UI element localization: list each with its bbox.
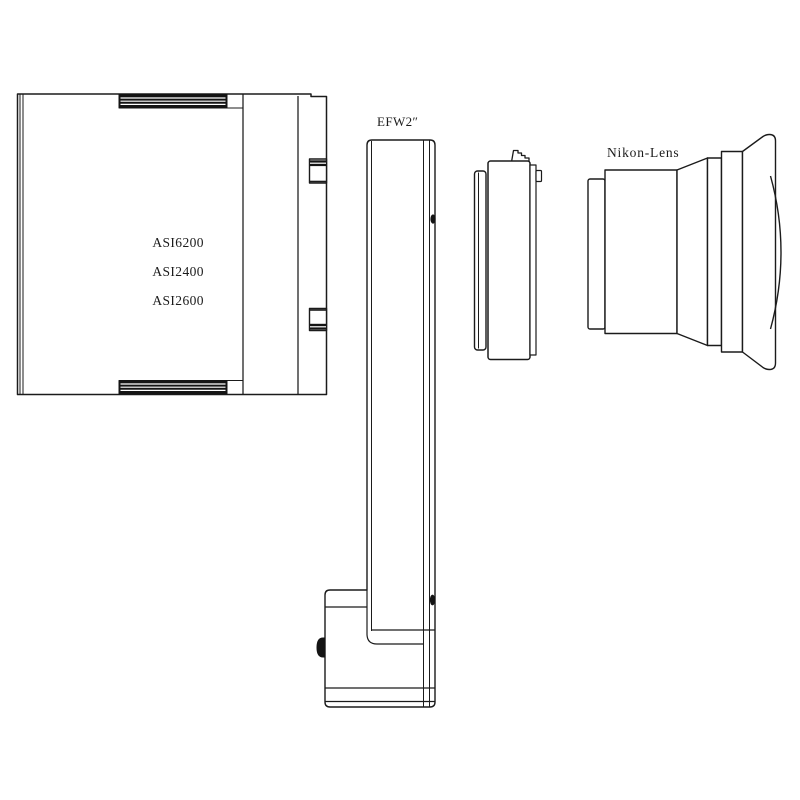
- camera-heatsink-top: [119, 95, 243, 109]
- camera-model-1: ASI6200: [152, 235, 204, 250]
- adapter-body: [488, 161, 530, 360]
- nikon-adapter: [475, 151, 542, 360]
- adapter-index-tab: [536, 171, 542, 182]
- lens-ring-a: [708, 158, 722, 346]
- lens-ring-b: [722, 152, 743, 353]
- camera-model-2: ASI2400: [152, 264, 204, 279]
- usb-port-upper: [310, 159, 327, 183]
- filter-wheel-body: [325, 140, 435, 707]
- adapter-rear-ring: [530, 165, 536, 355]
- lens-cone: [677, 158, 708, 346]
- lens-label: Nikon-Lens: [607, 145, 680, 161]
- motor-connector-bump: [317, 638, 326, 658]
- camera-model-labels: ASI6200 ASI2400 ASI2600: [138, 221, 204, 323]
- filter-wheel-label: EFW2″: [377, 114, 418, 130]
- thumb-screw-lower: [430, 595, 435, 606]
- camera-heatsink-bottom: [119, 381, 243, 395]
- filter-wheel: [317, 140, 436, 707]
- nikon-lens: [588, 135, 781, 370]
- thumb-screw-upper: [430, 214, 435, 223]
- adapter-flange: [475, 171, 487, 350]
- diagram-page: ASI6200 ASI2400 ASI2600 EFW2″ Nikon-Lens: [0, 0, 800, 800]
- camera-model-3: ASI2600: [152, 293, 204, 308]
- lens-mount-ring: [588, 179, 605, 329]
- lens-front-bell: [743, 135, 776, 370]
- usb-port-lower: [310, 309, 327, 331]
- lens-barrel: [605, 170, 677, 334]
